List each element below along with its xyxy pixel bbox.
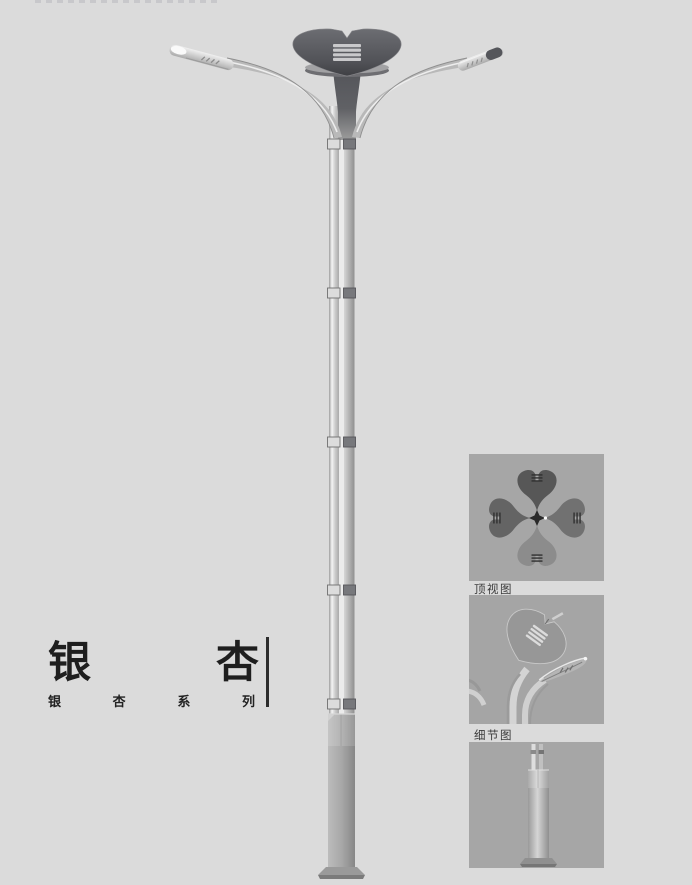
pole-base [318,714,365,879]
title-char-2: 杏 [216,641,259,686]
catalog-page: 银 杏 银 杏 系 列 [0,0,692,885]
left-lamp-head [168,44,235,72]
pole-twin-tubes [329,106,355,714]
top-view-thumbnail [469,454,604,581]
page-title: 银 杏 [48,641,259,689]
base-view-thumbnail [469,742,604,868]
title-divider-bar [266,637,269,707]
title-char-1: 银 [48,641,91,686]
detail-view-label: 细节图 [474,727,513,743]
ginkgo-crown [293,29,401,77]
detail-view-thumbnail [469,595,604,724]
series-subtitle: 银 杏 系 列 [48,691,255,710]
